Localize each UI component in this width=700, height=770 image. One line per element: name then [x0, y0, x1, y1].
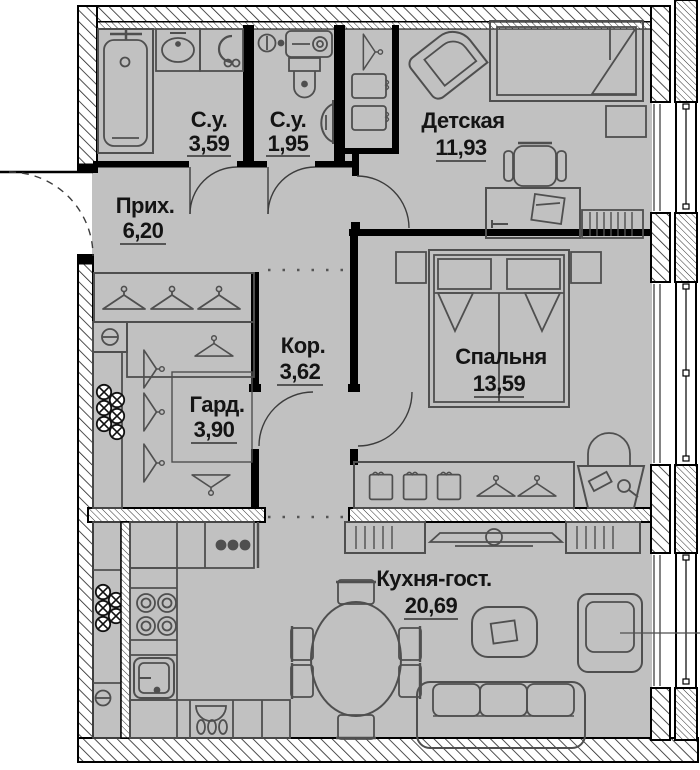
inner-walls-hatched	[88, 508, 651, 522]
svg-text:Прих.: Прих.	[116, 193, 175, 218]
svg-text:Гард.: Гард.	[190, 392, 245, 417]
svg-text:3,59: 3,59	[189, 131, 230, 156]
svg-text:С.у.: С.у.	[191, 107, 227, 132]
svg-text:1,95: 1,95	[268, 131, 309, 156]
window-spalnya	[654, 282, 696, 465]
svg-text:Спальня: Спальня	[455, 344, 547, 369]
room-label-koridor: Кор. 3,62	[277, 333, 325, 385]
svg-text:Кор.: Кор.	[281, 333, 325, 358]
room-label-su2: С.у. 1,95	[266, 107, 310, 156]
svg-text:11,93: 11,93	[435, 135, 487, 160]
svg-text:С.у.: С.у.	[270, 107, 306, 132]
svg-text:Кухня-гост.: Кухня-гост.	[376, 566, 491, 591]
floor-plan: С.у. 3,59 С.у. 1,95 Детская 11,93 Прих. …	[0, 0, 700, 770]
window-kitchen	[654, 553, 696, 688]
svg-text:13,59: 13,59	[473, 371, 526, 396]
room-label-su1: С.у. 3,59	[187, 107, 231, 156]
svg-text:3,90: 3,90	[194, 417, 235, 442]
window-detskaya	[654, 102, 696, 213]
svg-text:6,20: 6,20	[123, 218, 164, 243]
svg-text:20,69: 20,69	[405, 593, 458, 618]
svg-text:3,62: 3,62	[280, 359, 321, 384]
svg-text:Детская: Детская	[421, 108, 504, 133]
